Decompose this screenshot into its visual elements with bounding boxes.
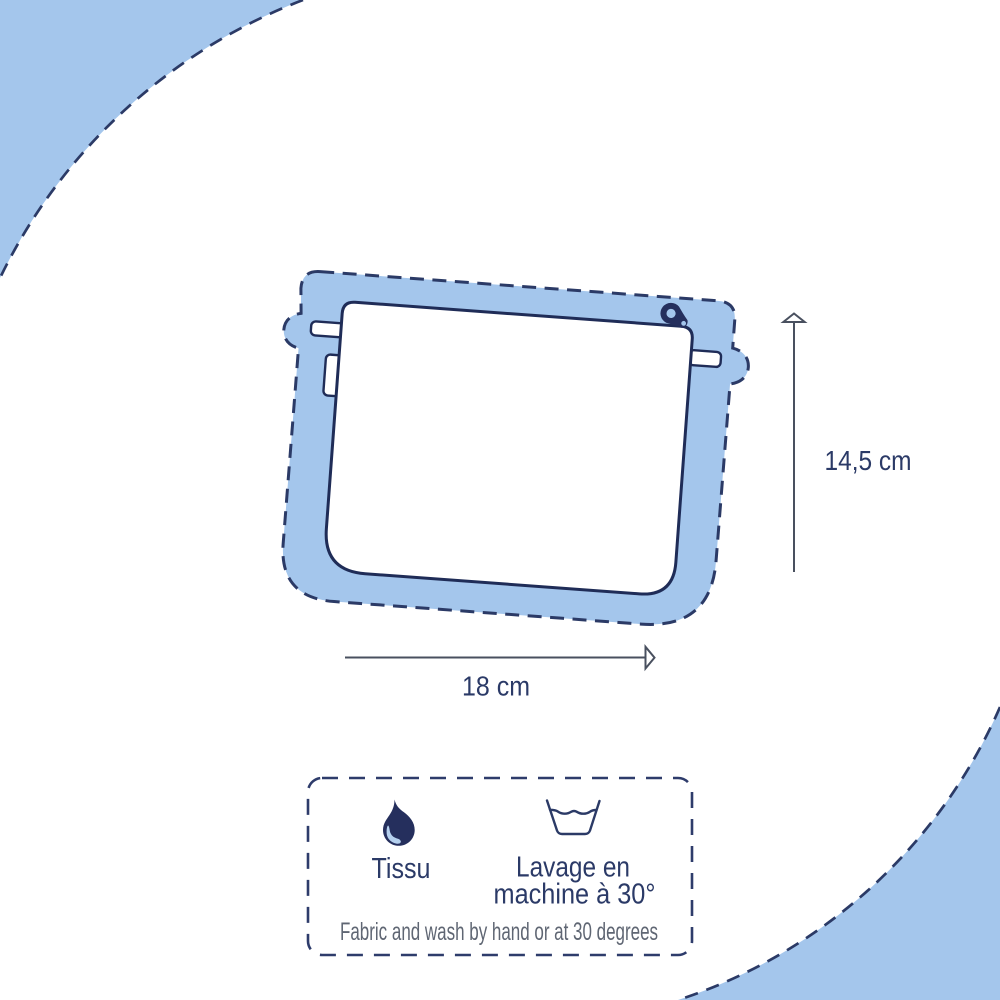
svg-text:18 cm: 18 cm — [462, 671, 530, 702]
svg-text:14,5 cm: 14,5 cm — [825, 445, 912, 476]
svg-text:machine à 30°: machine à 30° — [494, 879, 656, 911]
svg-text:Fabric and wash by hand or at: Fabric and wash by hand or at 30 degrees — [340, 918, 658, 946]
svg-text:Tissu: Tissu — [372, 853, 431, 885]
